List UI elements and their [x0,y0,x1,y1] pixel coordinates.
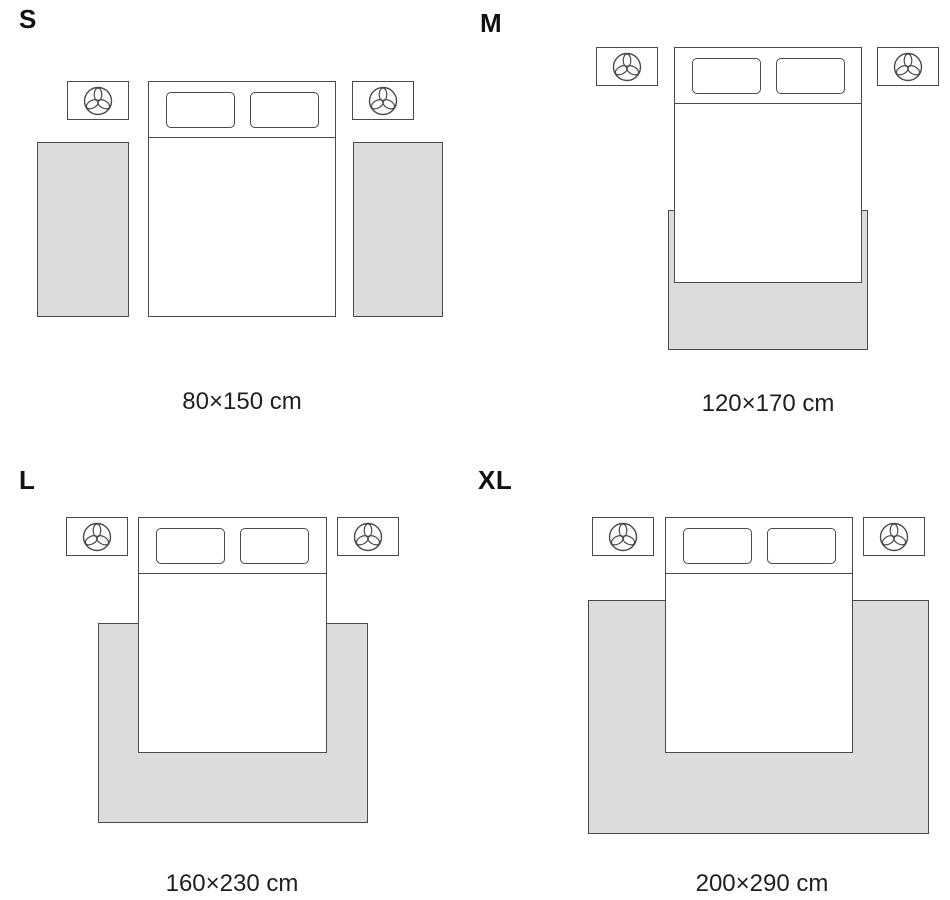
nightstand-left [592,517,654,556]
plant-icon [351,520,385,554]
pillow-left [683,528,752,564]
rug-size-caption: 200×290 cm [652,870,872,898]
rug-size-guide: S [0,0,950,900]
nightstand-left [596,47,658,86]
plant-icon [877,520,911,554]
plant-icon [81,84,115,118]
nightstand-right [863,517,925,556]
size-label: S [19,6,37,32]
rug-size-caption: 160×230 cm [122,870,342,898]
bed-headboard-area [666,518,852,574]
plant-icon [366,84,400,118]
bed [138,517,327,753]
rug-left-runner [37,142,129,317]
size-l-panel: L [0,450,475,900]
size-s-panel: S [0,0,475,450]
size-label: M [480,10,502,36]
pillow-left [692,58,761,94]
pillow-right [240,528,309,564]
nightstand-left [66,517,128,556]
plant-icon [80,520,114,554]
pillow-left [156,528,225,564]
size-xl-panel: XL [475,450,950,900]
rug-size-caption: 80×150 cm [132,388,352,416]
nightstand-right [352,81,414,120]
bed [148,81,336,317]
bed [665,517,853,753]
plant-icon [891,50,925,84]
nightstand-left [67,81,129,120]
nightstand-right [337,517,399,556]
nightstand-right [877,47,939,86]
size-label: XL [478,467,512,493]
bed [674,47,862,283]
pillow-right [767,528,836,564]
plant-icon [606,520,640,554]
rug-right-runner [353,142,443,317]
bed-headboard-area [675,48,861,104]
bed-headboard-area [149,82,335,138]
pillow-right [776,58,845,94]
size-m-panel: M [475,0,950,450]
size-label: L [19,467,35,493]
pillow-right [250,92,319,128]
plant-icon [610,50,644,84]
pillow-left [166,92,235,128]
bed-headboard-area [139,518,326,574]
rug-size-caption: 120×170 cm [658,390,878,418]
